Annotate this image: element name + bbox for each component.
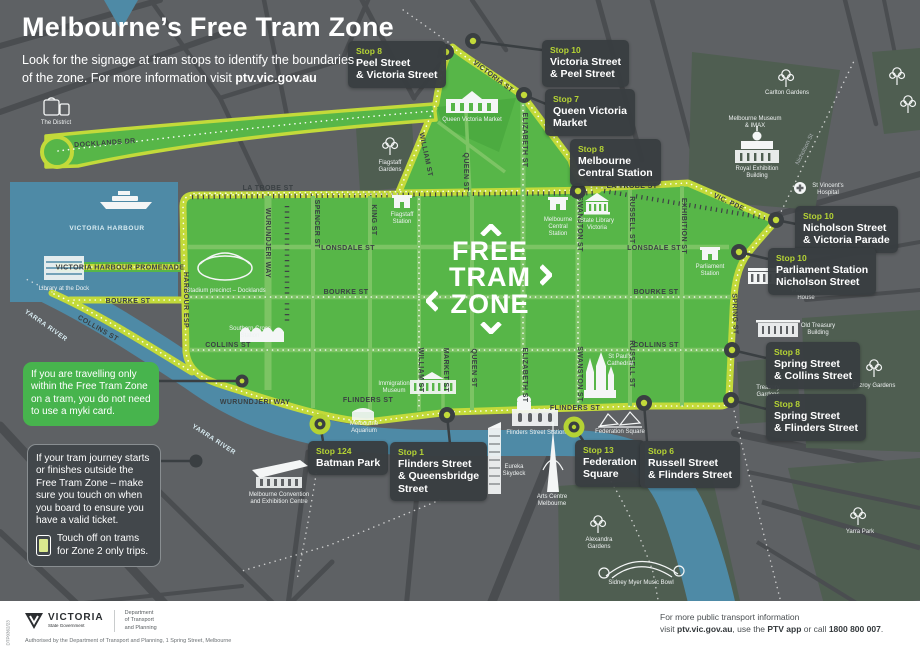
poi-aquarium-1: Melbourne [350, 421, 379, 427]
stop-name: Batman Park [316, 457, 380, 469]
hospital-cross-icon [794, 182, 806, 194]
boat-deck-icon [112, 196, 138, 201]
street-label-promenade: VICTORIA HARBOUR PROMENADE [56, 265, 185, 272]
street-label-bourke-c: BOURKE ST [324, 289, 369, 296]
info-box-touch-on: If your tram journey starts or finishes … [27, 444, 161, 567]
callout-stop-batman-park: Stop 124 Batman Park [308, 441, 388, 475]
free-tram-zone-map-poster: DOCKLANDS DR HARBOUR ESP VICTORIA HARBOU… [0, 0, 920, 651]
stop-number: Stop 6 [648, 446, 732, 456]
callout-stop-fed-square: Stop 13 Federation Square [575, 440, 645, 487]
logo-line-tram: TRAM [428, 264, 552, 290]
chevron-up-icon [480, 224, 502, 236]
info-touch-on-text: If your tram journey starts or finishes … [36, 453, 149, 526]
poi-state-library-2: Victoria [587, 225, 608, 231]
eureka-tower-icon [488, 422, 501, 494]
header: Melbourne’s Free Tram Zone Look for the … [22, 12, 394, 87]
street-label-collins-w: COLLINS ST [205, 342, 251, 349]
authorised-text: Authorised by the Department of Transpor… [25, 638, 231, 644]
stop-number: Stop 124 [316, 446, 380, 456]
street-label-lonsdale-w: LONSDALE ST [321, 245, 375, 252]
street-label-elizabeth-n: ELIZABETH ST [521, 113, 528, 168]
poi-flinders-station: Flinders Street Station [506, 430, 565, 436]
stop-number: Stop 10 [776, 253, 868, 263]
stop-name: Nicholson Street [776, 276, 868, 288]
poi-st-pauls-2: Cathedral [607, 361, 633, 367]
callout-stop-russell-flinders: Stop 6 Russell Street & Flinders Street [640, 441, 740, 488]
poi-reb-2: Building [746, 173, 767, 179]
poi-yarra-park: Yarra Park [846, 529, 875, 535]
info-no-myki-text: If you are travelling only within the Fr… [31, 369, 151, 417]
poi-parliament-station-1: Parliament [696, 264, 725, 270]
poi-st-vincents-1: St Vincent's [812, 183, 843, 189]
poi-the-district: The District [41, 120, 72, 126]
poi-old-treasury-1: Old Treasury [801, 323, 835, 329]
chevron-down-icon [480, 322, 502, 334]
callout-stop-spring-flinders: Stop 8 Spring Street & Flinders Street [766, 394, 866, 441]
poi-st-vincents-2: Hospital [817, 190, 839, 196]
street-label-spring: SPRING ST [730, 293, 738, 335]
chevron-left-icon [426, 290, 438, 312]
callout-stop-victoria-peel: Stop 10 Victoria Street & Peel Street [542, 40, 629, 87]
street-label-elizabeth-s: ELIZABETH ST [521, 348, 528, 403]
poi-parliament-house-2: House [797, 295, 815, 301]
poi-music-bowl: Sidney Myer Music Bowl [608, 580, 673, 586]
victoria-government-logo: VICTORIA State Government Department of … [24, 610, 157, 632]
poi-flagstaff-station-2: Station [393, 219, 412, 225]
poi-southern-cross-2: Station [241, 333, 260, 339]
poi-fed-square: Federation Square [595, 429, 645, 435]
street-label-harbour-esp: HARBOUR ESP [182, 272, 189, 328]
poi-alexandra-1: Alexandra [585, 537, 613, 543]
poi-flagstaff-station-1: Flagstaff [391, 212, 414, 218]
street-label-king: KING ST [370, 204, 377, 236]
callout-stop-flinders-queensbridge: Stop 1 Flinders Street & Queensbridge St… [390, 442, 487, 501]
stop-name: & Collins Street [774, 370, 852, 382]
stop-name: Federation [583, 456, 637, 468]
callout-stop-qvm: Stop 7 Queen Victoria Market [545, 89, 635, 136]
stop-number: Stop 10 [550, 45, 621, 55]
stop-name: Flinders Street [398, 458, 479, 470]
subtitle-line1: Look for the signage at tram stops to id… [22, 53, 354, 67]
free-tram-zone-logo: FREE TRAM ZONE [428, 238, 552, 317]
page-subtitle: Look for the signage at tram stops to id… [22, 52, 394, 87]
stop-name: Market [553, 117, 627, 129]
stop-name: Square [583, 468, 637, 480]
stop-number: Stop 8 [774, 399, 858, 409]
street-label-william-s: WILLIAM ST [417, 348, 424, 393]
dept-line: and Planning [125, 625, 157, 632]
poi-museum-1: Melbourne Museum [728, 116, 781, 122]
poi-library-dock: Library at the Dock [39, 286, 90, 292]
poi-southern-cross-1: Southern Cross [229, 326, 271, 332]
stop-name: Russell Street [648, 457, 732, 469]
dept-line: Department [125, 610, 157, 617]
stop-name: & Flinders Street [648, 469, 732, 481]
callout-stop-melb-central: Stop 8 Melbourne Central Station [570, 139, 661, 186]
poi-eureka-2: Skydeck [503, 471, 527, 477]
logo-line-zone: ZONE [428, 291, 552, 317]
street-label-swanston-n: SWANSTON ST [576, 196, 583, 252]
logo-line-free: FREE [428, 238, 552, 264]
department-name: Department of Transport and Planning [125, 610, 157, 631]
poi-melb-central-2: Central [548, 224, 567, 230]
poi-melb-central-3: Station [549, 231, 568, 237]
subtitle-ptv-link: ptv.vic.gov.au [235, 71, 317, 85]
contact-line2: visit [660, 624, 677, 634]
contact-line2: . [881, 624, 883, 634]
poi-arts-centre-2: Melbourne [538, 501, 567, 507]
stop-number: Stop 10 [803, 211, 890, 221]
street-label-wurundjeri-v: WURUNDJERI WAY [264, 208, 271, 278]
chevron-right-icon [540, 264, 552, 286]
poi-flagstaff-gardens-2: Gardens [378, 167, 401, 173]
stop-name: Spring Street [774, 410, 858, 422]
street-label-bourke-w: BOURKE ST [106, 298, 151, 305]
info-touch-off-text: Touch off on trams for Zone 2 only trips… [57, 533, 152, 558]
street-label-queen-n: QUEEN ST [462, 153, 469, 192]
poi-museum-2: & IMAX [745, 123, 765, 129]
street-label-exhibition: EXHIBITION ST [680, 198, 687, 254]
stop-number: Stop 7 [553, 94, 627, 104]
street-label-swanston-s: SWANSTON ST [576, 346, 583, 402]
stop-number: Stop 8 [774, 347, 852, 357]
poi-stadium: Stadium precinct – Docklands [186, 288, 265, 294]
poi-parliament-station-2: Station [701, 271, 720, 277]
poi-arts-centre-1: Arts Centre [537, 494, 568, 500]
street-label-wurundjeri-h: WURUNDJERI WAY [220, 399, 290, 406]
boat-cabin-icon [118, 191, 130, 195]
callout-stop-nicholson-vicpde: Stop 10 Nicholson Street & Victoria Para… [795, 206, 898, 253]
poi-alexandra-2: Gardens [587, 544, 610, 550]
stop-name: Street [398, 483, 479, 495]
info-box-no-myki: If you are travelling only within the Fr… [23, 362, 159, 426]
brand-victoria: VICTORIA [48, 613, 104, 623]
poi-aquarium-2: Aquarium [351, 428, 377, 434]
docklands-loop [42, 137, 72, 167]
street-label-bourke-e: BOURKE ST [634, 289, 679, 296]
poi-old-treasury-2: Building [807, 330, 828, 336]
contact-line1: For more public transport information [660, 612, 799, 622]
street-label-lonsdale-e: LONSDALE ST [627, 245, 681, 252]
contact-line2: , use the [732, 624, 767, 634]
ptv-app: PTV app [767, 624, 801, 634]
poi-mcec-2: and Exhibition Centre [250, 499, 308, 505]
street-label-la-trobe-w: LA TROBE ST [243, 185, 294, 192]
poi-qvm: Queen Victoria Market [442, 117, 502, 123]
stop-name: Melbourne [578, 155, 653, 167]
poi-immigration-2: Museum [382, 388, 405, 394]
stop-number: Stop 8 [578, 144, 653, 154]
street-label-flinders-e: FLINDERS ST [550, 405, 601, 412]
stop-number: Stop 13 [583, 445, 637, 455]
street-label-collins-e: COLLINS ST [633, 342, 679, 349]
stop-name: & Peel Street [550, 68, 621, 80]
street-label-market: MARKET ST [442, 348, 449, 393]
poi-reb-1: Royal Exhibition [735, 166, 778, 172]
street-label-russell-n: RUSSELL ST [628, 196, 635, 244]
poi-mcec-1: Melbourne Convention [249, 492, 309, 498]
dept-line: of Transport [125, 617, 157, 624]
poi-st-pauls-1: St Paul's [608, 354, 632, 360]
water-label-victoria-harbour: VICTORIA HARBOUR [69, 225, 144, 232]
poi-immigration-1: Immigration [378, 381, 409, 387]
footer: DTP0362/23 VICTORIA State Government Dep… [0, 601, 920, 651]
brand-state-government: State Government [48, 624, 104, 629]
stop-name: Victoria Street [550, 56, 621, 68]
ptv-url: ptv.vic.gov.au [677, 624, 732, 634]
poi-state-library-1: State Library [580, 218, 614, 224]
contact-line2: or call [801, 624, 828, 634]
subtitle-line2: of the zone. For more information visit [22, 71, 232, 85]
boat-icon [100, 202, 152, 209]
poi-flagstaff-gardens-1: Flagstaff [379, 160, 402, 166]
stop-name: Nicholson Street [803, 222, 890, 234]
stop-number: Stop 1 [398, 447, 479, 457]
callout-stop-spring-collins: Stop 8 Spring Street & Collins Street [766, 342, 860, 389]
poi-carlton-gardens: Carlton Gardens [765, 90, 809, 96]
stop-name: Central Station [578, 167, 653, 179]
stop-name: & Queensbridge [398, 470, 479, 482]
myki-card-icon [36, 535, 51, 556]
street-label-queen-s: QUEEN ST [470, 349, 477, 388]
stop-name: Queen Victoria [553, 105, 627, 117]
street-label-spencer: SPENCER ST [313, 200, 320, 249]
document-code: DTP0362/23 [6, 606, 11, 646]
poi-melb-central-1: Melbourne [544, 217, 573, 223]
phone-number: 1800 800 007 [829, 624, 881, 634]
stop-name: Spring Street [774, 358, 852, 370]
stop-name: & Flinders Street [774, 422, 858, 434]
footer-contact-info: For more public transport information vi… [660, 611, 883, 636]
stop-name: & Victoria Parade [803, 234, 890, 246]
victoria-triangle-icon [24, 611, 44, 631]
callout-stop-parliament: Stop 10 Parliament Station Nicholson Str… [768, 248, 876, 295]
stop-name: Parliament Station [776, 264, 868, 276]
poi-eureka-1: Eureka [504, 464, 524, 470]
street-label-flinders-w: FLINDERS ST [343, 397, 394, 404]
page-title: Melbourne’s Free Tram Zone [22, 12, 394, 43]
